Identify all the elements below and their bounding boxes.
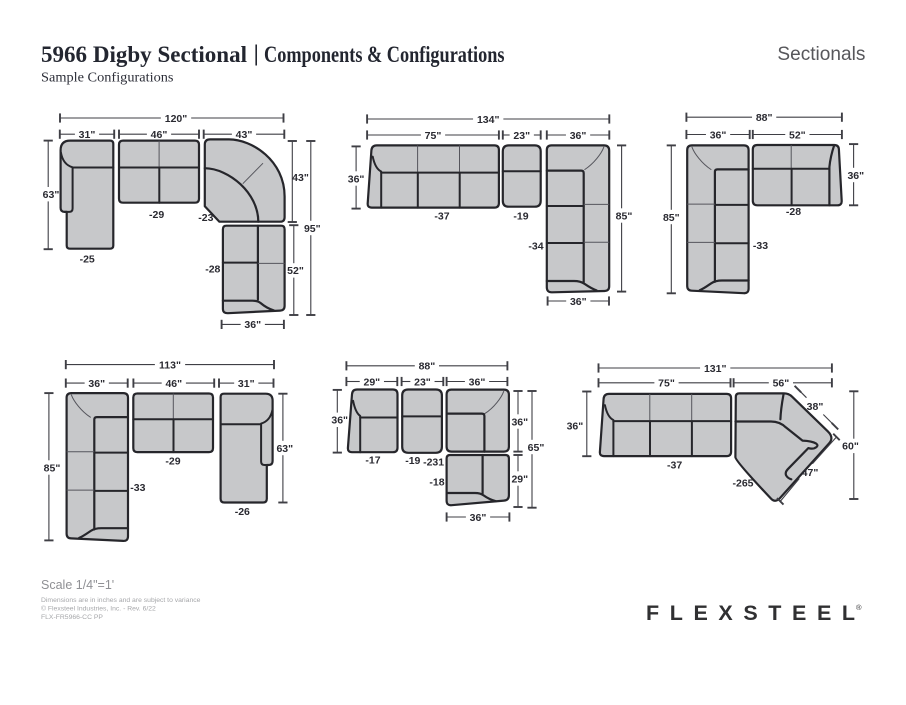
- svg-text:-18: -18: [429, 476, 444, 488]
- svg-text:52": 52": [789, 129, 806, 141]
- svg-text:23": 23": [414, 376, 431, 388]
- svg-text:36": 36": [348, 173, 365, 185]
- svg-text:31": 31": [79, 129, 96, 141]
- svg-text:FLEXSTEEL: FLEXSTEEL: [646, 601, 866, 625]
- svg-text:23": 23": [513, 130, 530, 142]
- svg-text:46": 46": [151, 129, 168, 141]
- svg-text:®: ®: [856, 603, 862, 612]
- svg-text:88": 88": [419, 361, 436, 373]
- svg-text:-34: -34: [528, 241, 543, 253]
- svg-text:-19: -19: [513, 210, 528, 222]
- svg-text:85": 85": [616, 210, 633, 222]
- svg-text:38": 38": [807, 401, 824, 413]
- svg-text:-265: -265: [732, 477, 753, 489]
- svg-text:36": 36": [470, 512, 487, 524]
- svg-text:36": 36": [570, 296, 587, 308]
- svg-text:88": 88": [756, 112, 773, 124]
- svg-text:-29: -29: [165, 456, 180, 468]
- svg-text:47": 47": [802, 467, 819, 479]
- svg-text:Sectionals: Sectionals: [777, 43, 865, 65]
- svg-text:FLX-FR5966-CC PP: FLX-FR5966-CC PP: [41, 614, 103, 621]
- svg-text:63": 63": [276, 443, 293, 455]
- svg-text:95": 95": [304, 223, 321, 235]
- svg-text:131": 131": [704, 363, 727, 375]
- svg-text:-37: -37: [434, 210, 449, 222]
- svg-text:36": 36": [331, 415, 348, 427]
- svg-text:-37: -37: [667, 460, 682, 472]
- svg-text:36": 36": [847, 170, 864, 182]
- svg-text:43": 43": [292, 172, 309, 184]
- svg-text:36": 36": [469, 376, 486, 388]
- svg-text:-17: -17: [365, 455, 380, 467]
- svg-text:113": 113": [159, 359, 181, 371]
- svg-text:-28: -28: [205, 264, 220, 276]
- svg-text:-28: -28: [786, 206, 801, 218]
- svg-text:-29: -29: [149, 209, 164, 221]
- svg-text:43": 43": [236, 129, 253, 141]
- svg-text:36": 36": [567, 421, 584, 433]
- svg-text:-33: -33: [130, 482, 145, 494]
- svg-text:36": 36": [570, 130, 587, 142]
- svg-text:-19: -19: [405, 455, 420, 467]
- svg-text:75": 75": [425, 130, 442, 142]
- svg-text:-26: -26: [235, 506, 250, 518]
- svg-text:36": 36": [88, 378, 105, 390]
- svg-text:5966 Digby Sectional: 5966 Digby Sectional: [41, 42, 247, 67]
- svg-text:85": 85": [44, 462, 61, 474]
- svg-text:36": 36": [244, 319, 261, 331]
- svg-text:36": 36": [710, 129, 727, 141]
- svg-text:29": 29": [364, 376, 381, 388]
- svg-text:© Flexsteel Industries, Inc. -: © Flexsteel Industries, Inc. - Rev. 6/22: [41, 605, 156, 613]
- svg-text:46": 46": [165, 378, 182, 390]
- svg-text:52": 52": [287, 265, 304, 277]
- svg-text:63": 63": [43, 189, 60, 201]
- svg-text:120": 120": [165, 113, 188, 125]
- svg-text:75": 75": [658, 378, 675, 390]
- svg-text:134": 134": [477, 114, 500, 126]
- svg-text:36": 36": [511, 416, 528, 428]
- svg-text:-23: -23: [198, 212, 213, 224]
- svg-text:Components & Configurations: Components & Configurations: [264, 42, 505, 67]
- svg-text:-231: -231: [423, 457, 444, 469]
- svg-text:56": 56": [773, 378, 790, 390]
- svg-text:65": 65": [528, 442, 545, 454]
- svg-text:Dimensions are in inches and a: Dimensions are in inches and are subject…: [41, 597, 201, 604]
- svg-text:Scale 1/4"=1': Scale 1/4"=1': [41, 578, 114, 592]
- svg-text:85": 85": [663, 212, 680, 224]
- svg-text:-33: -33: [753, 240, 768, 252]
- svg-text:Sample Configurations: Sample Configurations: [41, 71, 174, 86]
- svg-text:31": 31": [238, 378, 255, 390]
- svg-text:60": 60": [842, 441, 859, 453]
- svg-text:29": 29": [511, 473, 528, 485]
- svg-text:-25: -25: [80, 254, 95, 266]
